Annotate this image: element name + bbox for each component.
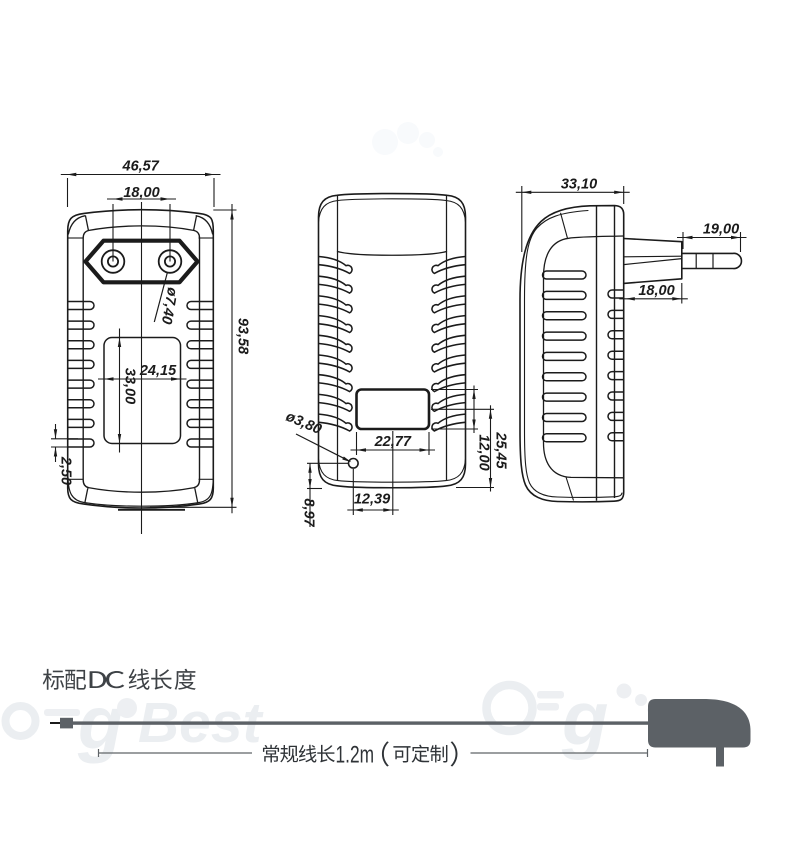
svg-text:2,50: 2,50: [58, 456, 74, 485]
svg-text:12,39: 12,39: [354, 492, 390, 508]
svg-text:ø7,40: ø7,40: [158, 286, 180, 325]
svg-text:93,58: 93,58: [235, 318, 251, 355]
svg-text:12,00: 12,00: [476, 434, 492, 470]
svg-text:33,00: 33,00: [122, 368, 138, 404]
svg-text:24,15: 24,15: [139, 363, 177, 379]
svg-text:18,00: 18,00: [638, 283, 674, 299]
svg-text:8,97: 8,97: [301, 498, 317, 527]
svg-text:46,57: 46,57: [122, 159, 160, 175]
svg-text:25,45: 25,45: [493, 431, 509, 469]
svg-text:1.2m: 1.2m: [336, 742, 375, 769]
svg-text:19,00: 19,00: [703, 222, 739, 238]
svg-text:18,00: 18,00: [123, 185, 159, 201]
svg-text:33,10: 33,10: [561, 177, 597, 193]
svg-text:g: g: [561, 676, 608, 761]
